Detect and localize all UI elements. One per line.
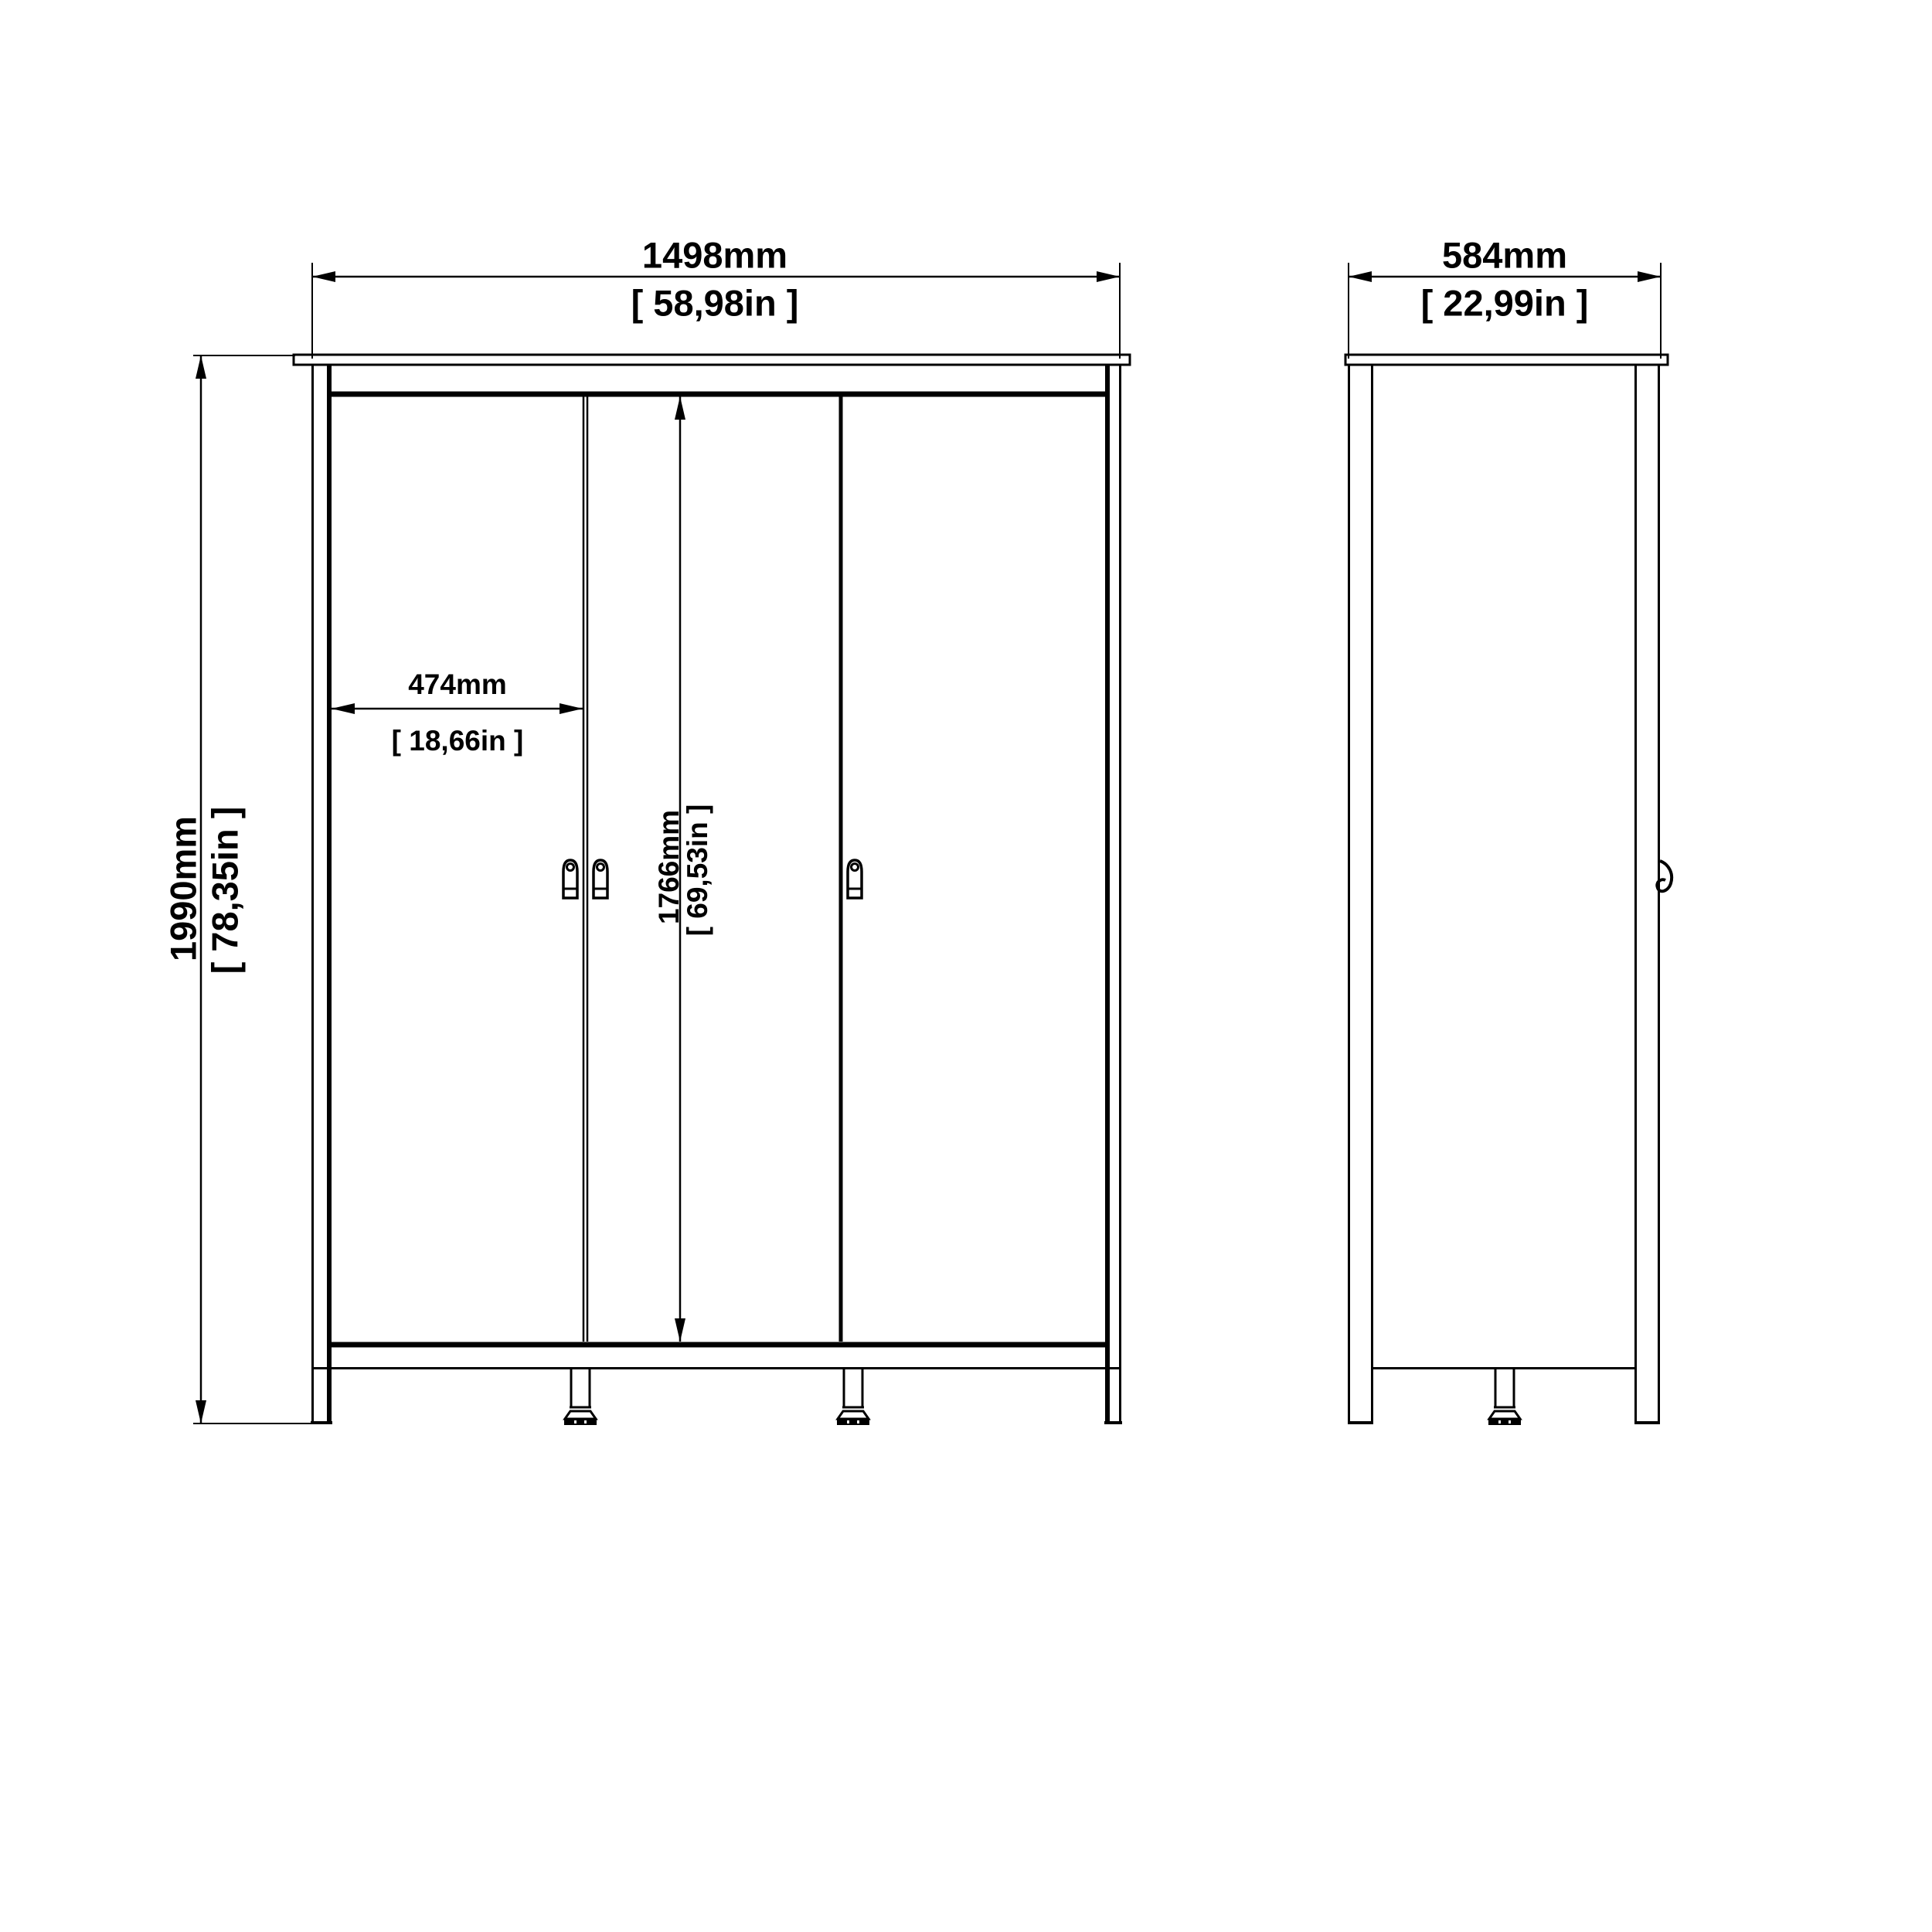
door-width-label-in: [ 18,66in ] (392, 725, 524, 757)
front-foot-1-cone (565, 1411, 596, 1419)
dim-door-width-arrow-right (560, 703, 583, 714)
door-height-label-in: [ 69,53in ] (682, 804, 714, 937)
door2-handle (594, 860, 607, 898)
front-foot-1 (564, 1369, 597, 1425)
door1-handle (563, 860, 577, 898)
side-foot-notch-1 (1498, 1420, 1501, 1423)
front-foot-1-notch-1 (574, 1420, 577, 1423)
dim-door-width (332, 703, 583, 714)
drawing-linework (0, 0, 1932, 1932)
side-view (1345, 355, 1672, 1425)
dim-door-width-arrow-left (332, 703, 355, 714)
front-foot-2 (837, 1369, 869, 1425)
front-foot-2-notch-1 (847, 1420, 849, 1423)
door3-handle-ring (852, 864, 859, 871)
front-foot-2-notch-2 (857, 1420, 859, 1423)
dim-depth-arrow-right (1638, 271, 1661, 282)
dim-door-height-arrow-top (675, 396, 685, 420)
front-foot-1-notch-2 (584, 1420, 587, 1423)
depth-label-in: [ 22,99in ] (1421, 282, 1589, 325)
door1-handle-ring (567, 864, 574, 871)
front-foot-1-base (564, 1419, 597, 1425)
side-foot (1488, 1369, 1521, 1425)
door-width-label-mm: 474mm (408, 668, 507, 701)
door3-handle (848, 860, 862, 898)
depth-label-mm: 584mm (1442, 234, 1567, 277)
front-top-panel (294, 355, 1130, 365)
dim-door-height-arrow-bottom (675, 1318, 685, 1342)
dim-depth-arrow-left (1349, 271, 1372, 282)
dimension-lines (193, 263, 1661, 1423)
side-foot-cone (1489, 1411, 1520, 1419)
front-foot-2-cone (838, 1411, 869, 1419)
dim-width-arrow-left (312, 271, 335, 282)
wardrobe-dimension-drawing: 1498mm [ 58,98in ] 584mm [ 22,99in ] 199… (0, 0, 1932, 1932)
height-label-in: [ 78,35in ] (204, 807, 247, 975)
width-label-in: [ 58,98in ] (631, 282, 799, 325)
side-top-panel (1345, 355, 1668, 365)
front-foot-2-base (837, 1419, 869, 1425)
width-label-mm: 1498mm (642, 234, 787, 277)
dim-width-arrow-right (1097, 271, 1120, 282)
side-foot-notch-2 (1509, 1420, 1511, 1423)
door2-handle-ring (597, 864, 604, 871)
dim-height-arrow-bottom (196, 1400, 206, 1423)
side-foot-base (1488, 1419, 1521, 1425)
door-height-label-mm: 1766mm (653, 810, 685, 924)
dim-height-arrow-top (196, 355, 206, 379)
height-label-mm: 1990mm (162, 816, 205, 961)
